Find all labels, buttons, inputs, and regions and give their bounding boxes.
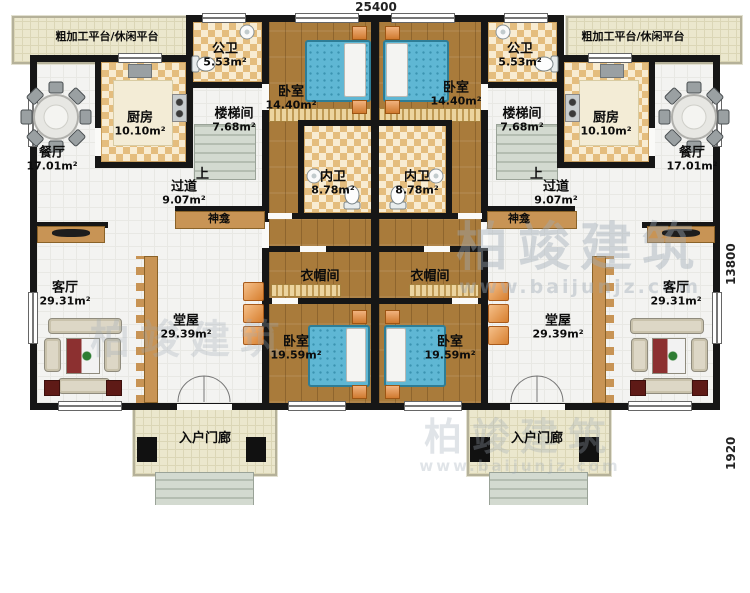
screen-partition-teeth [606, 256, 614, 403]
room-label-platform-left: 粗加工平台/休闲平台 [55, 31, 158, 43]
nightstand [352, 385, 367, 399]
room-label-shrine-right: 神龛 [508, 213, 530, 225]
window [712, 95, 722, 147]
floor-plan-page: 柏竣建筑 www.baijunjz.com 柏竣建筑 www.baijunjz.… [0, 0, 750, 593]
door-opening [272, 298, 298, 304]
wall-segment [371, 15, 379, 409]
window [288, 401, 346, 411]
armchair [631, 338, 648, 372]
wall-segment [298, 120, 304, 219]
door-opening [510, 404, 565, 410]
armchair [44, 338, 61, 372]
tv [662, 229, 700, 237]
door-opening [300, 246, 326, 252]
stair-up-label-left: 上 [196, 163, 209, 182]
shrine-shelf-right [487, 211, 577, 229]
room-label-corridor-left: 过道9.07m² [162, 181, 205, 208]
wall-segment [30, 55, 193, 62]
nightstand [352, 26, 367, 40]
porch-steps-left [155, 472, 254, 507]
screen-partition-right [592, 256, 606, 403]
armchair [691, 338, 708, 372]
wall-segment [557, 162, 655, 168]
stove [172, 94, 187, 122]
door-opening [458, 213, 482, 219]
screen-partition-left [144, 256, 158, 403]
wall-segment [186, 82, 269, 88]
window [58, 401, 122, 411]
dimension-right: 13800 [724, 205, 738, 285]
door-opening [95, 128, 101, 156]
room-label-living-right: 客厅29.31m² [650, 282, 701, 309]
porch-column [579, 437, 599, 462]
end-table [106, 380, 122, 396]
door-opening [649, 128, 655, 156]
armchair [104, 338, 121, 372]
tv [52, 229, 90, 237]
floor-ensuite-bath-left [304, 124, 372, 213]
stair-up-label-right: 上 [530, 163, 543, 182]
room-label-bedroom-top-left: 卧室14.40m² [265, 86, 316, 113]
window [118, 53, 162, 63]
room-label-hall-left: 堂屋29.39m² [160, 315, 211, 342]
sofa [48, 318, 122, 334]
room-label-living-left: 客厅29.31m² [39, 282, 90, 309]
end-table [630, 380, 646, 396]
coffee-table [66, 338, 100, 374]
room-label-hall-right: 堂屋29.39m² [532, 315, 583, 342]
stove [565, 94, 580, 122]
bed-pillow [386, 328, 406, 382]
window [202, 13, 246, 23]
screen-partition-teeth [136, 256, 144, 403]
window [712, 292, 722, 344]
room-label-public-bath-left: 公卫5.53m² [203, 43, 246, 70]
wall-segment [557, 55, 720, 62]
hall-chair [488, 326, 509, 345]
room-label-bedroom-bottom-right: 卧室19.59m² [424, 336, 475, 363]
door-opening [452, 298, 478, 304]
bed-pillow [346, 328, 366, 382]
porch-column [470, 437, 490, 462]
room-label-shrine-left: 神龛 [208, 213, 230, 225]
room-label-cloakroom-right: 衣帽间 [410, 270, 449, 284]
porch-steps-right [489, 472, 588, 507]
door-opening [268, 213, 292, 219]
wall-segment [372, 120, 452, 126]
hall-chair [243, 304, 264, 323]
nightstand [385, 26, 400, 40]
wall-segment [186, 15, 193, 168]
door-opening [177, 404, 232, 410]
hall-chair [243, 282, 264, 301]
window [504, 13, 548, 23]
dimension-porch: 1920 [724, 420, 738, 470]
wall-segment [95, 162, 193, 168]
room-label-bedroom-bottom-left: 卧室19.59m² [270, 336, 321, 363]
wall-segment [481, 82, 564, 88]
wall-segment [557, 15, 564, 168]
room-label-ensuite-bath-right: 内卫8.78m² [395, 171, 438, 198]
nightstand [385, 100, 400, 114]
room-label-dining-right: 餐厅17.01m² [666, 147, 717, 174]
bed-pillow [344, 43, 366, 97]
nightstand [352, 100, 367, 114]
cloak-hanger-right [409, 284, 479, 297]
door-opening [481, 84, 488, 110]
window [28, 95, 38, 147]
window [28, 292, 38, 344]
room-label-platform-right: 粗加工平台/休闲平台 [581, 31, 684, 43]
window [391, 13, 455, 23]
range-hood [600, 64, 624, 78]
room-label-corridor-right: 过道9.07m² [534, 181, 577, 208]
room-label-stairwell-left: 楼梯间7.68m² [212, 108, 255, 135]
room-label-dining-left: 餐厅17.01m² [26, 147, 77, 174]
window [295, 13, 359, 23]
nightstand [385, 310, 400, 324]
plan-canvas: 柏竣建筑 www.baijunjz.com 柏竣建筑 www.baijunjz.… [0, 0, 750, 505]
hall-chair [488, 282, 509, 301]
sofa [630, 318, 704, 334]
sofa [642, 378, 694, 394]
range-hood [128, 64, 152, 78]
hall-chair [488, 304, 509, 323]
dimension-top: 25400 [332, 0, 420, 14]
room-label-public-bath-right: 公卫5.53m² [498, 43, 541, 70]
floor-ensuite-bath-right [378, 124, 446, 213]
room-label-cloakroom-left: 衣帽间 [300, 270, 339, 284]
window [588, 53, 632, 63]
bed-pillow [386, 43, 408, 97]
window [404, 401, 462, 411]
nightstand [385, 385, 400, 399]
door-opening [424, 246, 450, 252]
porch-column [246, 437, 266, 462]
title-block: 一层平面图 1:100 本层建筑面积：350.48m² 本栋建筑面积：916.2… [0, 505, 750, 593]
room-label-kitchen-right: 厨房10.10m² [580, 112, 631, 139]
porch-column [137, 437, 157, 462]
end-table [692, 380, 708, 396]
hall-chair [243, 326, 264, 345]
room-label-porch-left: 入户门廊 [179, 432, 231, 446]
nightstand [352, 310, 367, 324]
wall-segment [446, 120, 452, 219]
cloak-hanger-left [271, 284, 341, 297]
room-label-porch-right: 入户门廊 [511, 432, 563, 446]
coffee-table [652, 338, 686, 374]
room-label-kitchen-left: 厨房10.10m² [114, 112, 165, 139]
room-label-bedroom-top-right: 卧室14.40m² [430, 82, 481, 109]
window [628, 401, 692, 411]
sofa [58, 378, 110, 394]
end-table [44, 380, 60, 396]
room-label-ensuite-bath-left: 内卫8.78m² [311, 171, 354, 198]
room-label-stairwell-right: 楼梯间7.68m² [500, 108, 543, 135]
wall-segment [298, 120, 378, 126]
